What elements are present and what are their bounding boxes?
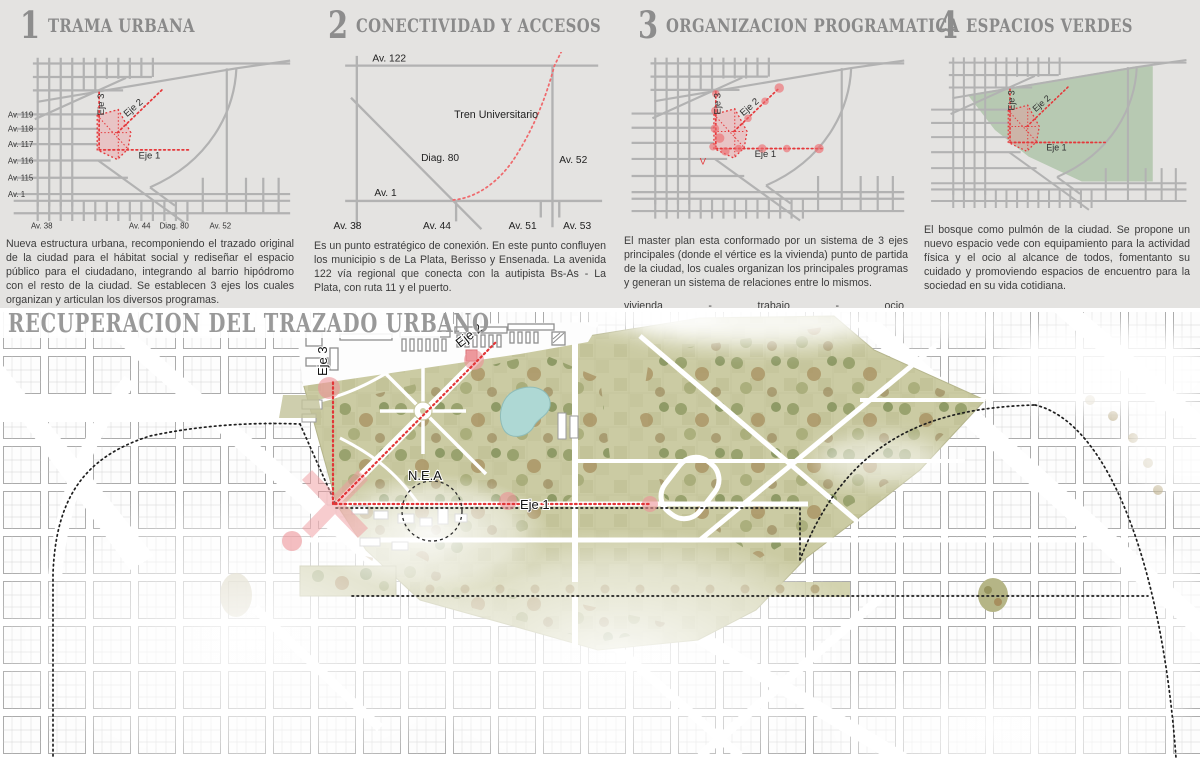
label-av115: Av. 115 [8,174,34,183]
panel2-description: Es un punto estratégico de conexión. En … [314,239,606,295]
label-av38: Av. 38 [31,222,53,230]
label-eje1: Eje 1 [755,149,777,160]
top-panels: 1 TRAMA URBANA Av. 119 Av. 118 Av. 117 A… [0,0,1200,308]
label-diag80: Diag. 80 [160,222,190,230]
label-av44: Av. 44 [423,221,451,232]
label-av51: Av. 51 [509,221,537,232]
panel-trama-urbana: 1 TRAMA URBANA Av. 119 Av. 118 Av. 117 A… [0,0,306,308]
presentation-board: 1 TRAMA URBANA Av. 119 Av. 118 Av. 117 A… [0,0,1200,758]
label-vertice: V [700,157,707,168]
label-eje3: Eje 3 [96,94,107,116]
panel1-description: Nueva estructura urbana, recomponiendo e… [6,237,294,307]
label-eje1: Eje 1 [138,151,160,162]
panel1-header: 1 TRAMA URBANA [20,8,294,50]
panel2-diagram: Av. 122 Tren Universitario Diag. 80 Av. … [314,52,606,232]
map-label-eje3: Eje 3 [315,346,330,376]
label-av1: Av. 1 [8,190,25,199]
label-eje3: Eje 3 [713,93,724,115]
label-av52: Av. 52 [210,222,232,230]
panel3-title: ORGANIZACION PROGRAMATICA [666,15,959,37]
masterplan-map-section: Eje 3 Eje 2 Eje 1 N.E.A RECUPERACION DEL… [0,308,1200,758]
panel1-diagram: Av. 119 Av. 118 Av. 117 Av. 116 Av. 115 … [6,52,294,230]
label-av1: Av. 1 [374,188,397,199]
panel2-header: 2 CONECTIVIDAD Y ACCESOS [328,8,606,50]
panel2-title: CONECTIVIDAD Y ACCESOS [356,15,601,37]
panel3-number: 3 [638,8,658,43]
tren-universitario-route [453,52,561,200]
label-av44: Av. 44 [129,222,151,230]
panel4-number: 4 [938,8,958,43]
panel4-description: El bosque como pulmón de la ciudad. Se p… [924,223,1190,293]
plaza-center [420,408,426,414]
label-diag80: Diag. 80 [421,153,459,164]
label-eje1: Eje 1 [1046,142,1066,152]
panel3-description: El master plan esta conformado por un si… [624,234,908,290]
panel1-title: TRAMA URBANA [48,15,195,37]
panel3-header: 3 ORGANIZACION PROGRAMATICA [638,8,908,50]
label-av52: Av. 52 [559,155,587,166]
label-av119: Av. 119 [8,110,33,119]
panel4-header: 4 ESPACIOS VERDES [938,8,1190,50]
label-av117: Av. 117 [8,140,33,149]
label-av118: Av. 118 [8,125,34,134]
label-av122: Av. 122 [372,54,406,65]
map-label-nea: N.E.A [408,468,442,483]
panel2-streets [345,56,602,229]
map-label-eje1: Eje 1 [520,497,550,512]
panel-organizacion: 3 ORGANIZACION PROGRAMATICA Eje 3 Eje 2 [618,0,920,308]
panel4-diagram: Eje 3 Eje 2 Eje 1 [924,52,1190,216]
label-tren: Tren Universitario [454,109,538,121]
panel3-diagram: Eje 3 Eje 2 Eje 1 V [624,52,908,227]
label-eje3: Eje 3 [1006,90,1016,110]
label-av53: Av. 53 [563,221,591,232]
label-av38: Av. 38 [333,221,361,232]
panel1-number: 1 [20,8,40,43]
masterplan-map: Eje 3 Eje 2 Eje 1 N.E.A [0,308,1200,758]
map-title: RECUPERACION DEL TRAZADO URBANO [8,309,490,339]
panel4-title: ESPACIOS VERDES [966,15,1133,37]
label-av116: Av. 116 [8,156,34,165]
panel2-number: 2 [328,8,348,43]
panel-espacios-verdes: 4 ESPACIOS VERDES Eje 3 Eje 2 Eje 1 El b… [920,0,1200,308]
panel-conectividad: 2 CONECTIVIDAD Y ACCESOS Av. 122 Tren Un… [306,0,618,308]
